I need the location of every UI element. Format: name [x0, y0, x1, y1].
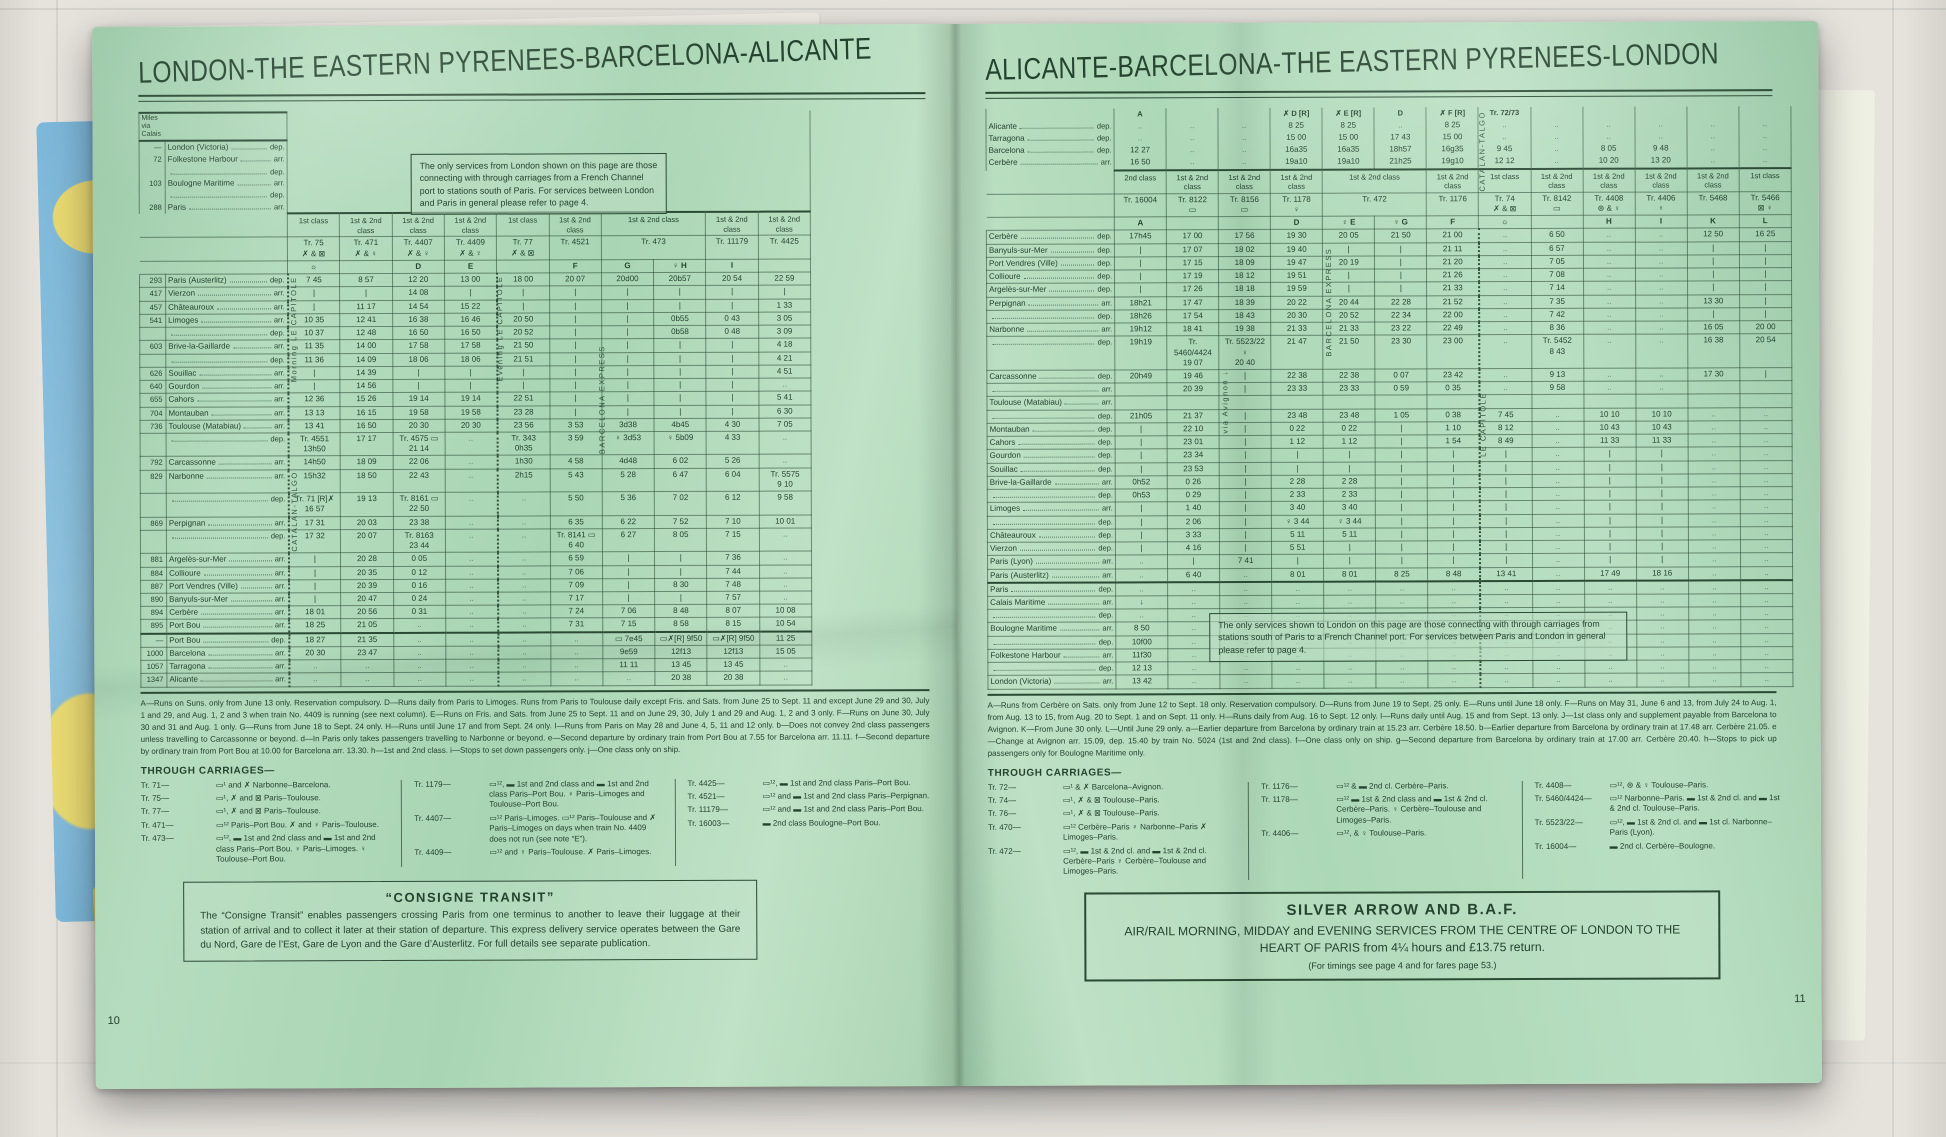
through-carriages-column: Tr. 1179—▭¹², ▬ 1st and 2nd class and ▬ …	[401, 779, 661, 868]
time-cell: ..	[393, 659, 445, 672]
time-cell: |	[654, 352, 706, 365]
station-cell: Colliouredep.	[987, 270, 1115, 284]
train-number-cell: Tr. 75 ✗ & ⊠	[287, 237, 339, 261]
time-cell: 10 37	[288, 327, 340, 340]
time-cell: |	[1323, 269, 1375, 282]
time-cell: 12f13	[655, 645, 707, 658]
time-cell: 11 11	[603, 659, 655, 672]
station-cell: Paris (Austerlitz)dep.	[166, 274, 288, 288]
time-cell: 13 00	[444, 273, 496, 286]
time-cell: ..	[1584, 660, 1636, 673]
time-cell: 8 48	[655, 605, 707, 618]
time-cell: 0 12	[393, 566, 445, 579]
time-cell: 9 58	[759, 491, 811, 515]
time-cell: ..	[445, 529, 497, 553]
time-cell: ..	[759, 378, 811, 391]
time-cell: 23 33	[1323, 382, 1375, 395]
station-cell: dep.	[165, 190, 287, 202]
time-cell: |	[1739, 307, 1791, 320]
time-cell: ..	[1740, 421, 1792, 434]
through-carriage-entry: Tr. 470—▭¹² Cerbère–Paris ♀ Narbonne–Par…	[988, 822, 1234, 844]
time-cell: |	[1220, 541, 1272, 554]
time-cell: ..	[1532, 474, 1584, 487]
time-cell: ..	[1740, 434, 1792, 447]
time-cell: 21 11	[1427, 242, 1479, 255]
timetable-row: dep.Tr. 71 [R]✗ 16 5719 13Tr. 8161 ▭ 22 …	[140, 491, 811, 517]
time-cell: 21 50	[1375, 229, 1427, 242]
time-cell: 17 19	[1167, 270, 1219, 283]
time-cell: 7 05	[1531, 255, 1583, 268]
time-cell: ..	[759, 551, 811, 564]
time-cell: 20 39	[341, 579, 393, 592]
timetable-booklet: LONDON-THE EASTERN PYRENEES-BARCELONA-AL…	[92, 21, 1822, 1089]
time-cell: 18 16	[1636, 566, 1688, 580]
time-cell: 0 48	[706, 325, 758, 338]
time-cell: 12 36	[288, 393, 340, 406]
time-cell: 0h53	[1115, 489, 1167, 502]
time-cell: 20 38	[655, 672, 707, 685]
time-cell: ▭✗[R] 9f50	[707, 631, 759, 645]
time-cell: 13 41	[1480, 567, 1532, 581]
time-cell: ..	[1428, 661, 1480, 674]
time-cell: |	[1584, 461, 1636, 474]
time-cell: 6 40	[1168, 568, 1220, 582]
train-number-cell: Tr. 473	[601, 236, 706, 260]
time-cell: 6 02	[654, 455, 706, 468]
time-cell: |	[1219, 475, 1271, 488]
station-cell: Toulouse (Matabiau)arr.	[987, 396, 1115, 410]
station-cell: Limogesarr.	[166, 314, 288, 328]
time-cell: |	[1115, 529, 1167, 542]
time-cell: 8 05	[1583, 143, 1635, 155]
time-cell: ..	[445, 469, 497, 493]
time-cell: |	[1115, 449, 1167, 462]
time-cell	[1427, 395, 1479, 408]
through-carriage-entry: Tr. 473—▭¹², ▬ 1st and 2nd class and ▬ 1…	[141, 833, 387, 865]
time-cell: ..	[1376, 581, 1428, 595]
consigne-title: “CONSIGNE TRANSIT”	[200, 889, 740, 906]
time-cell: 0 16	[393, 579, 445, 592]
station-cell: Narbonnearr.	[166, 470, 288, 494]
time-cell: ..	[1583, 368, 1635, 381]
time-cell: 7 41	[1220, 555, 1272, 568]
time-cell: 8 07	[707, 604, 759, 617]
time-cell: ..	[1688, 434, 1740, 447]
time-cell: ..	[1688, 580, 1740, 594]
time-cell: ..	[445, 566, 497, 579]
time-cell: ..	[1689, 647, 1741, 660]
station-cell: London (Victoria)arr.	[988, 675, 1116, 689]
station-cell: Folkestone Harbourarr.	[988, 649, 1116, 663]
time-cell: ..	[1218, 144, 1270, 156]
time-cell	[1479, 395, 1531, 408]
through-carriages-title: THROUGH CARRIAGES—	[988, 765, 1781, 779]
time-cell: Tr. 5452 8 43	[1531, 335, 1583, 369]
station-cell: Boulogne Maritimearr.	[988, 622, 1116, 636]
time-cell: ..	[1740, 620, 1792, 633]
time-cell: |	[1480, 514, 1532, 527]
time-cell: ..	[1740, 594, 1792, 607]
silver-arrow-title: SILVER ARROW AND B.A.F.	[1102, 900, 1702, 919]
time-cell: 19 13	[341, 493, 393, 517]
time-cell: ..	[1376, 661, 1428, 674]
time-cell: 3 09	[758, 325, 810, 338]
station-cell: Paris (Lyon)arr.	[988, 555, 1116, 569]
time-cell: |	[602, 592, 654, 605]
time-cell: |	[1480, 461, 1532, 474]
time-cell: 19 46	[1167, 370, 1219, 383]
time-cell: 19 51	[1271, 269, 1323, 282]
time-cell	[1740, 381, 1792, 394]
time-cell: 14 09	[340, 353, 392, 366]
time-cell: ..	[1739, 130, 1791, 142]
time-cell: 5 41	[759, 391, 811, 404]
time-cell: ..	[1688, 620, 1740, 633]
time-cell: 1 54	[1427, 435, 1479, 448]
time-cell: ..	[1480, 594, 1532, 607]
time-cell: 6 22	[602, 515, 654, 528]
through-carriage-entry: Tr. 77—▭¹, ✗ and ⊠ Paris–Toulouse.	[141, 806, 387, 817]
left-through-carriages: THROUGH CARRIAGES— Tr. 71—▭¹ and ✗ Narbo…	[141, 763, 934, 869]
time-cell	[1531, 395, 1583, 408]
time-cell: |	[1114, 243, 1166, 256]
time-cell: 17 56	[1218, 230, 1270, 243]
time-cell: 17 30	[1688, 368, 1740, 381]
time-cell: 18 06	[392, 353, 444, 366]
time-cell: 18h57	[1374, 143, 1426, 155]
time-cell: ..	[1740, 566, 1792, 580]
time-cell: 18 18	[1219, 283, 1271, 296]
time-cell: 21 20	[1427, 256, 1479, 269]
time-cell: ..	[1583, 381, 1635, 394]
time-cell: ..	[1740, 500, 1792, 513]
time-cell: |	[1584, 527, 1636, 540]
train-number-cell: Tr. 1176	[1427, 192, 1479, 216]
station-cell: Vierzonarr.	[166, 287, 288, 301]
time-cell: ..	[1532, 674, 1584, 687]
time-cell: 10 35	[288, 314, 340, 327]
time-cell: 5 43	[550, 468, 602, 492]
time-cell: 19a10	[1270, 156, 1322, 169]
timetable-row: arr.20 39|23 3323 330 590 35..9 58....	[987, 381, 1792, 397]
time-cell: 18 09	[1219, 256, 1271, 269]
station-cell: Cerbèredep.	[986, 230, 1114, 244]
time-cell: 10 20	[1583, 155, 1635, 168]
time-cell: ..	[393, 633, 445, 647]
time-cell: |	[1428, 541, 1480, 554]
time-cell: 5 28	[602, 468, 654, 492]
timetable-grid: A✗ D [R]✗ E [R]D✗ F [R]Tr. 72/73Alicante…	[985, 106, 1793, 689]
time-cell: 0 05	[393, 553, 445, 566]
time-cell: 17 07	[1166, 243, 1218, 256]
time-cell: 10 54	[759, 617, 811, 631]
time-cell: ..	[1688, 500, 1740, 513]
time-cell: 16a35	[1270, 144, 1322, 156]
time-cell: 1 12	[1323, 435, 1375, 448]
time-cell: 6 30	[759, 405, 811, 418]
station-cell: Port Bouarr.	[167, 619, 289, 633]
time-cell: 2 33	[1271, 488, 1323, 501]
time-cell: |	[1687, 268, 1739, 281]
time-cell: ..	[1531, 155, 1583, 168]
time-cell: 7 15	[603, 618, 655, 632]
time-cell: 23 00	[1427, 335, 1479, 369]
train-number-cell: Tr. 472	[1322, 193, 1426, 217]
time-cell: ..	[446, 632, 498, 646]
time-cell: 20 52	[1323, 309, 1375, 322]
time-cell: ..	[1478, 131, 1530, 143]
time-cell: 1 05	[1375, 409, 1427, 422]
time-cell: ..	[1532, 540, 1584, 553]
time-cell: 9 48	[1635, 143, 1687, 155]
time-cell: 20h49	[1115, 370, 1167, 383]
station-cell: Cahorsdep.	[987, 436, 1115, 450]
time-cell: ..	[1741, 660, 1793, 673]
time-cell: 21 00	[1427, 229, 1479, 242]
time-cell: 7 02	[654, 492, 706, 516]
through-carriage-entry: Tr. 4425—▭¹², ▬ 1st and 2nd class Paris–…	[687, 778, 933, 789]
time-cell: 17 17	[340, 432, 392, 456]
time-cell: ..	[1584, 674, 1636, 687]
time-cell: Tr. 5460/4424 19 07	[1167, 336, 1219, 370]
time-cell: 12 27	[1114, 144, 1166, 156]
time-cell: 16 50	[392, 326, 444, 339]
time-cell: ..	[1688, 460, 1740, 473]
time-cell: |	[1428, 461, 1480, 474]
time-cell: 8 15	[707, 618, 759, 632]
time-cell: |	[654, 405, 706, 418]
time-cell: |	[1219, 449, 1271, 462]
time-cell: ..	[498, 632, 550, 646]
time-cell: ..	[1583, 281, 1635, 294]
station-cell: dep.	[988, 609, 1116, 623]
station-cell: Folkestone Harbourarr.	[165, 154, 287, 167]
time-cell: 21h25	[1374, 156, 1426, 169]
time-cell: 18 39	[1219, 296, 1271, 309]
time-cell: ..	[1479, 308, 1531, 321]
time-cell: |	[549, 299, 601, 312]
through-carriage-entry: Tr. 16004—▬ 2nd cl. Cerbère–Boulogne.	[1535, 841, 1781, 852]
time-cell: 7 05	[759, 418, 811, 431]
time-cell: |	[1115, 423, 1167, 436]
time-cell: 7 10	[707, 515, 759, 528]
time-cell: ..	[550, 659, 602, 672]
consigne-transit-box: “CONSIGNE TRANSIT” The “Consigne Transit…	[183, 880, 757, 962]
time-cell: ..	[498, 659, 550, 672]
right-note-box: The only services shown to London on thi…	[1209, 612, 1627, 662]
time-cell: 8 01	[1324, 568, 1376, 582]
station-cell: Perpignanarr.	[987, 297, 1115, 311]
time-cell: ..	[1740, 526, 1792, 539]
train-number-cell: Tr. 8156 ▭	[1218, 193, 1270, 217]
time-cell: ..	[1116, 582, 1168, 596]
through-carriages-columns: Tr. 72—▭¹ & ✗ Barcelona–Avignon.Tr. 74—▭…	[988, 780, 1781, 881]
time-cell: ..	[1479, 368, 1531, 381]
time-cell: ..	[1688, 407, 1740, 420]
time-cell: 2h15	[497, 469, 549, 493]
time-cell: ..	[1220, 582, 1272, 596]
time-cell: ♀ 3 44	[1272, 515, 1324, 528]
time-cell: ..	[1688, 421, 1740, 434]
photo-scene: LONDON-THE EASTERN PYRENEES-BARCELONA-AL…	[0, 0, 1946, 1137]
time-cell: |	[654, 365, 706, 378]
time-cell: ..	[1480, 581, 1532, 595]
time-cell: 0 38	[1427, 408, 1479, 421]
station-cell: Montaubandep.	[987, 423, 1115, 437]
time-cell: ..	[1532, 421, 1584, 434]
time-cell: ..	[1740, 513, 1792, 526]
time-cell: ..	[1635, 308, 1687, 321]
time-cell: |	[549, 405, 601, 418]
time-cell: |	[497, 366, 549, 379]
time-cell: 22 38	[1323, 369, 1375, 382]
time-cell: 23 48	[1323, 409, 1375, 422]
time-cell: 22 43	[393, 469, 445, 493]
time-cell: |	[444, 286, 496, 299]
time-cell: 22 10	[1167, 423, 1219, 436]
time-cell: 6 50	[1531, 229, 1583, 242]
time-cell: 16 50	[445, 326, 497, 339]
time-cell: 0 22	[1323, 422, 1375, 435]
time-cell: |	[1375, 243, 1427, 256]
time-cell: ..	[1532, 461, 1584, 474]
time-cell: 23 48	[1271, 409, 1323, 422]
time-cell: ..	[1116, 609, 1168, 622]
time-cell: 16 15	[340, 406, 392, 419]
time-cell: ..	[1583, 229, 1635, 242]
time-cell: ..	[341, 660, 393, 673]
time-cell: |	[706, 365, 758, 378]
time-cell: ..	[1428, 581, 1480, 595]
time-cell: |	[392, 366, 444, 379]
time-cell: ..	[1635, 130, 1687, 142]
time-cell: ..	[1637, 673, 1689, 686]
time-cell: 0b58	[654, 325, 706, 338]
time-cell: |	[602, 339, 654, 352]
time-cell: 18h26	[1115, 310, 1167, 323]
time-cell: |	[602, 365, 654, 378]
time-cell: 15 00	[1322, 131, 1374, 143]
time-cell: ..	[1479, 255, 1531, 268]
time-cell: 10 10	[1584, 408, 1636, 421]
time-cell: 16 38	[392, 313, 444, 326]
station-cell: dep.	[988, 662, 1116, 676]
time-cell: 6 57	[1531, 242, 1583, 255]
time-cell: 12 48	[340, 327, 392, 340]
time-cell: 11 36	[288, 353, 340, 366]
time-cell: |	[288, 300, 340, 313]
station-cell: Banyuls-sur-Merarr.	[167, 593, 289, 607]
through-carriage-entry: Tr. 16003—▬ 2nd class Boulogne–Port Bou.	[688, 818, 934, 829]
time-cell: |	[1480, 554, 1532, 567]
time-cell: 19 14	[393, 393, 445, 406]
time-cell: 20 07	[341, 529, 393, 553]
station-cell: Barcelonadep.	[986, 145, 1114, 158]
time-cell: ..	[1583, 242, 1635, 255]
time-cell: ..	[1740, 460, 1792, 473]
time-cell: 20 19	[1323, 256, 1375, 269]
time-cell: 6 04	[707, 468, 759, 492]
through-carriage-entry: Tr. 4521—▭¹² and ▬ 1st and 2nd class Par…	[687, 791, 933, 802]
time-cell: |	[1324, 554, 1376, 567]
time-cell: |	[288, 287, 340, 300]
time-cell: ..	[1688, 633, 1740, 646]
time-cell: ..	[760, 671, 812, 684]
time-cell: ..	[1740, 447, 1792, 460]
time-cell: |	[1168, 555, 1220, 568]
time-cell: |	[1739, 268, 1791, 281]
time-cell: 18 02	[1219, 243, 1271, 256]
time-cell: |	[1428, 554, 1480, 567]
time-cell: 14 08	[392, 287, 444, 300]
time-cell: |	[549, 326, 601, 339]
time-cell: |	[1323, 282, 1375, 295]
time-cell: |	[1480, 527, 1532, 540]
time-cell	[1115, 396, 1167, 409]
time-cell: ..	[341, 673, 393, 686]
time-cell: 17 00	[1166, 230, 1218, 243]
time-cell: 20 54	[1739, 334, 1791, 368]
time-cell: 4 51	[759, 365, 811, 378]
time-cell: ..	[1740, 473, 1792, 486]
time-cell: 8 57	[340, 274, 392, 287]
time-cell: 7 48	[707, 578, 759, 591]
time-cell: |	[602, 565, 654, 578]
time-cell: 12f13	[707, 645, 759, 658]
time-cell: ..	[1166, 132, 1218, 144]
station-cell: Souillacdep.	[987, 463, 1115, 477]
time-cell: ..	[446, 646, 498, 659]
time-cell: ..	[498, 672, 550, 685]
time-cell: ..	[498, 565, 550, 578]
time-cell: 20 30	[1271, 309, 1323, 322]
time-cell: 14 54	[392, 300, 444, 313]
timetable-row: dep.17 3220 07Tr. 8163 23 44....Tr. 8141…	[140, 528, 811, 554]
time-cell: |	[1376, 554, 1428, 567]
time-cell: 3 33	[1167, 528, 1219, 541]
time-cell: ..	[1741, 673, 1793, 686]
time-cell: ..	[498, 529, 550, 553]
time-cell: 22 38	[1271, 369, 1323, 382]
time-cell: 19 14	[445, 392, 497, 405]
time-cell: |	[1115, 270, 1167, 283]
time-cell: |	[1115, 542, 1167, 555]
time-cell: ..	[498, 552, 550, 565]
train-number-cell: Tr. 11179	[706, 236, 758, 260]
time-cell: ..	[1636, 620, 1688, 633]
time-cell: |	[602, 352, 654, 365]
time-cell: |	[1480, 488, 1532, 501]
right-page-title: ALICANTE-BARCELONA-THE EASTERN PYRENEES-…	[985, 39, 1636, 88]
station-cell: Boulogne Maritimearr.	[165, 178, 287, 191]
time-cell: |	[1219, 409, 1271, 422]
time-cell: 7 35	[1531, 295, 1583, 308]
time-cell: ..	[1741, 633, 1793, 646]
time-cell: 18 27	[289, 633, 341, 647]
time-cell: 16 38	[1687, 334, 1739, 368]
time-cell: |	[706, 286, 758, 299]
station-cell: dep.	[987, 336, 1115, 370]
time-cell: ..	[1739, 118, 1791, 130]
time-cell: 2 06	[1167, 515, 1219, 528]
station-cell: dep.	[166, 493, 288, 517]
through-carriages-columns: Tr. 71—▭¹ and ✗ Narbonne–Barcelona.Tr. 7…	[141, 778, 934, 869]
time-cell: 20 44	[1323, 296, 1375, 309]
time-cell: 17h45	[1114, 230, 1166, 243]
time-cell: |	[654, 392, 706, 405]
time-cell: 20b57	[654, 273, 706, 286]
time-cell: |	[289, 593, 341, 606]
